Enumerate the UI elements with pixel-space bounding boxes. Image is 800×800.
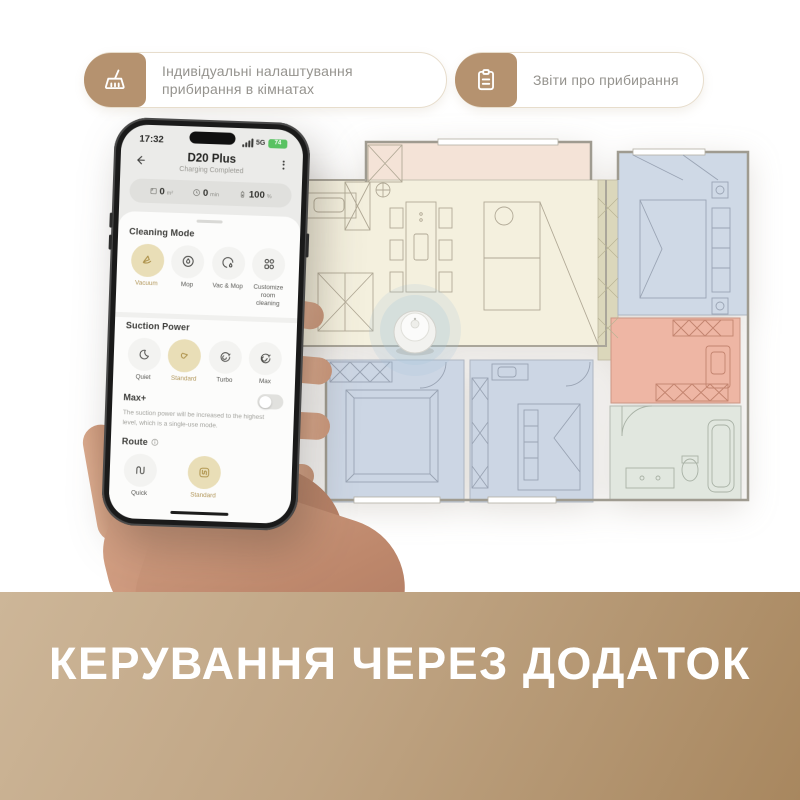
badge-label: Індивідуальні налаштування прибирання в … xyxy=(146,62,446,98)
suction-power-options: Quiet Standard Turbo Max xyxy=(124,337,285,387)
robot-vacuum xyxy=(369,284,461,376)
vac-and-mop-icon xyxy=(221,256,235,270)
clipboard-icon xyxy=(455,53,517,107)
kebab-icon xyxy=(282,160,284,169)
route-quick[interactable]: Quick xyxy=(120,454,160,499)
app-header: D20 Plus Charging Completed xyxy=(120,146,303,177)
volume-button xyxy=(109,235,113,250)
broom-icon xyxy=(84,53,146,107)
camera-notch xyxy=(189,131,235,145)
cleaning-mode-title: Cleaning Mode xyxy=(129,226,289,242)
suction-power-title: Suction Power xyxy=(126,320,286,336)
network-label: 5G xyxy=(256,139,266,146)
mode-customize-room[interactable]: Customize room cleaning xyxy=(249,247,289,309)
cleaning-stats: 0m² 0min 100% xyxy=(129,178,292,208)
route-title: Route xyxy=(122,437,148,448)
battery-indicator: 74 xyxy=(268,139,287,149)
route-options: Quick Standard xyxy=(120,454,281,504)
battery-stat: 100% xyxy=(239,189,272,201)
feature-badge-cleaning-reports: Звіти про прибирання xyxy=(455,52,704,108)
home-indicator[interactable] xyxy=(170,510,228,516)
mode-vacuum[interactable]: Vacuum xyxy=(127,243,167,305)
time-stat: 0min xyxy=(193,187,220,199)
control-sheet: Cleaning Mode Vacuum Mop Vac & Mop Custo… xyxy=(108,211,301,524)
phone: 17:32 5G 74 D20 Plus Charging Completed xyxy=(101,117,311,532)
quiet-icon xyxy=(137,348,150,361)
phone-screen: 17:32 5G 74 D20 Plus Charging Completed xyxy=(108,124,304,524)
room-grid-icon xyxy=(262,257,276,271)
back-button[interactable] xyxy=(132,152,146,166)
mode-mop[interactable]: Mop xyxy=(167,244,207,306)
power-standard[interactable]: Standard xyxy=(165,339,205,384)
signal-icon xyxy=(242,138,253,147)
cleaning-mode-options: Vacuum Mop Vac & Mop Customize room clea… xyxy=(127,243,289,309)
max-plus-row: Max+ xyxy=(123,389,283,410)
battery-icon xyxy=(239,190,247,198)
max-plus-toggle[interactable] xyxy=(257,394,284,410)
floor-plan xyxy=(288,138,763,508)
power-turbo[interactable]: Turbo xyxy=(205,340,245,385)
area-stat: 0m² xyxy=(149,185,173,197)
area-icon xyxy=(149,187,157,195)
power-quiet[interactable]: Quiet xyxy=(124,337,164,382)
bottom-banner: КЕРУВАННЯ ЧЕРЕЗ ДОДАТОК xyxy=(0,592,800,800)
max-plus-description: The suction power will be increased to t… xyxy=(122,408,276,433)
info-icon[interactable] xyxy=(151,439,159,447)
menu-button[interactable] xyxy=(276,157,290,171)
status-time: 17:32 xyxy=(139,133,164,145)
volume-button xyxy=(109,213,113,228)
quick-route-icon xyxy=(133,464,146,477)
route-standard[interactable]: Standard xyxy=(184,456,224,501)
feature-badge-individual-settings: Індивідуальні налаштування прибирання в … xyxy=(84,52,447,108)
badge-label: Звіти про прибирання xyxy=(517,71,703,89)
standard-fan-icon xyxy=(178,349,191,362)
mop-icon xyxy=(181,254,195,268)
max-icon xyxy=(259,352,272,365)
time-icon xyxy=(193,188,201,196)
turbo-icon xyxy=(218,350,231,363)
max-plus-label: Max+ xyxy=(123,392,146,403)
mode-vac-and-mop[interactable]: Vac & Mop xyxy=(208,246,248,308)
banner-title: КЕРУВАННЯ ЧЕРЕЗ ДОДАТОК xyxy=(49,638,751,800)
power-max[interactable]: Max xyxy=(246,341,286,386)
standard-route-icon xyxy=(197,466,210,479)
vacuum-icon xyxy=(140,253,154,267)
drag-handle[interactable] xyxy=(197,220,223,223)
